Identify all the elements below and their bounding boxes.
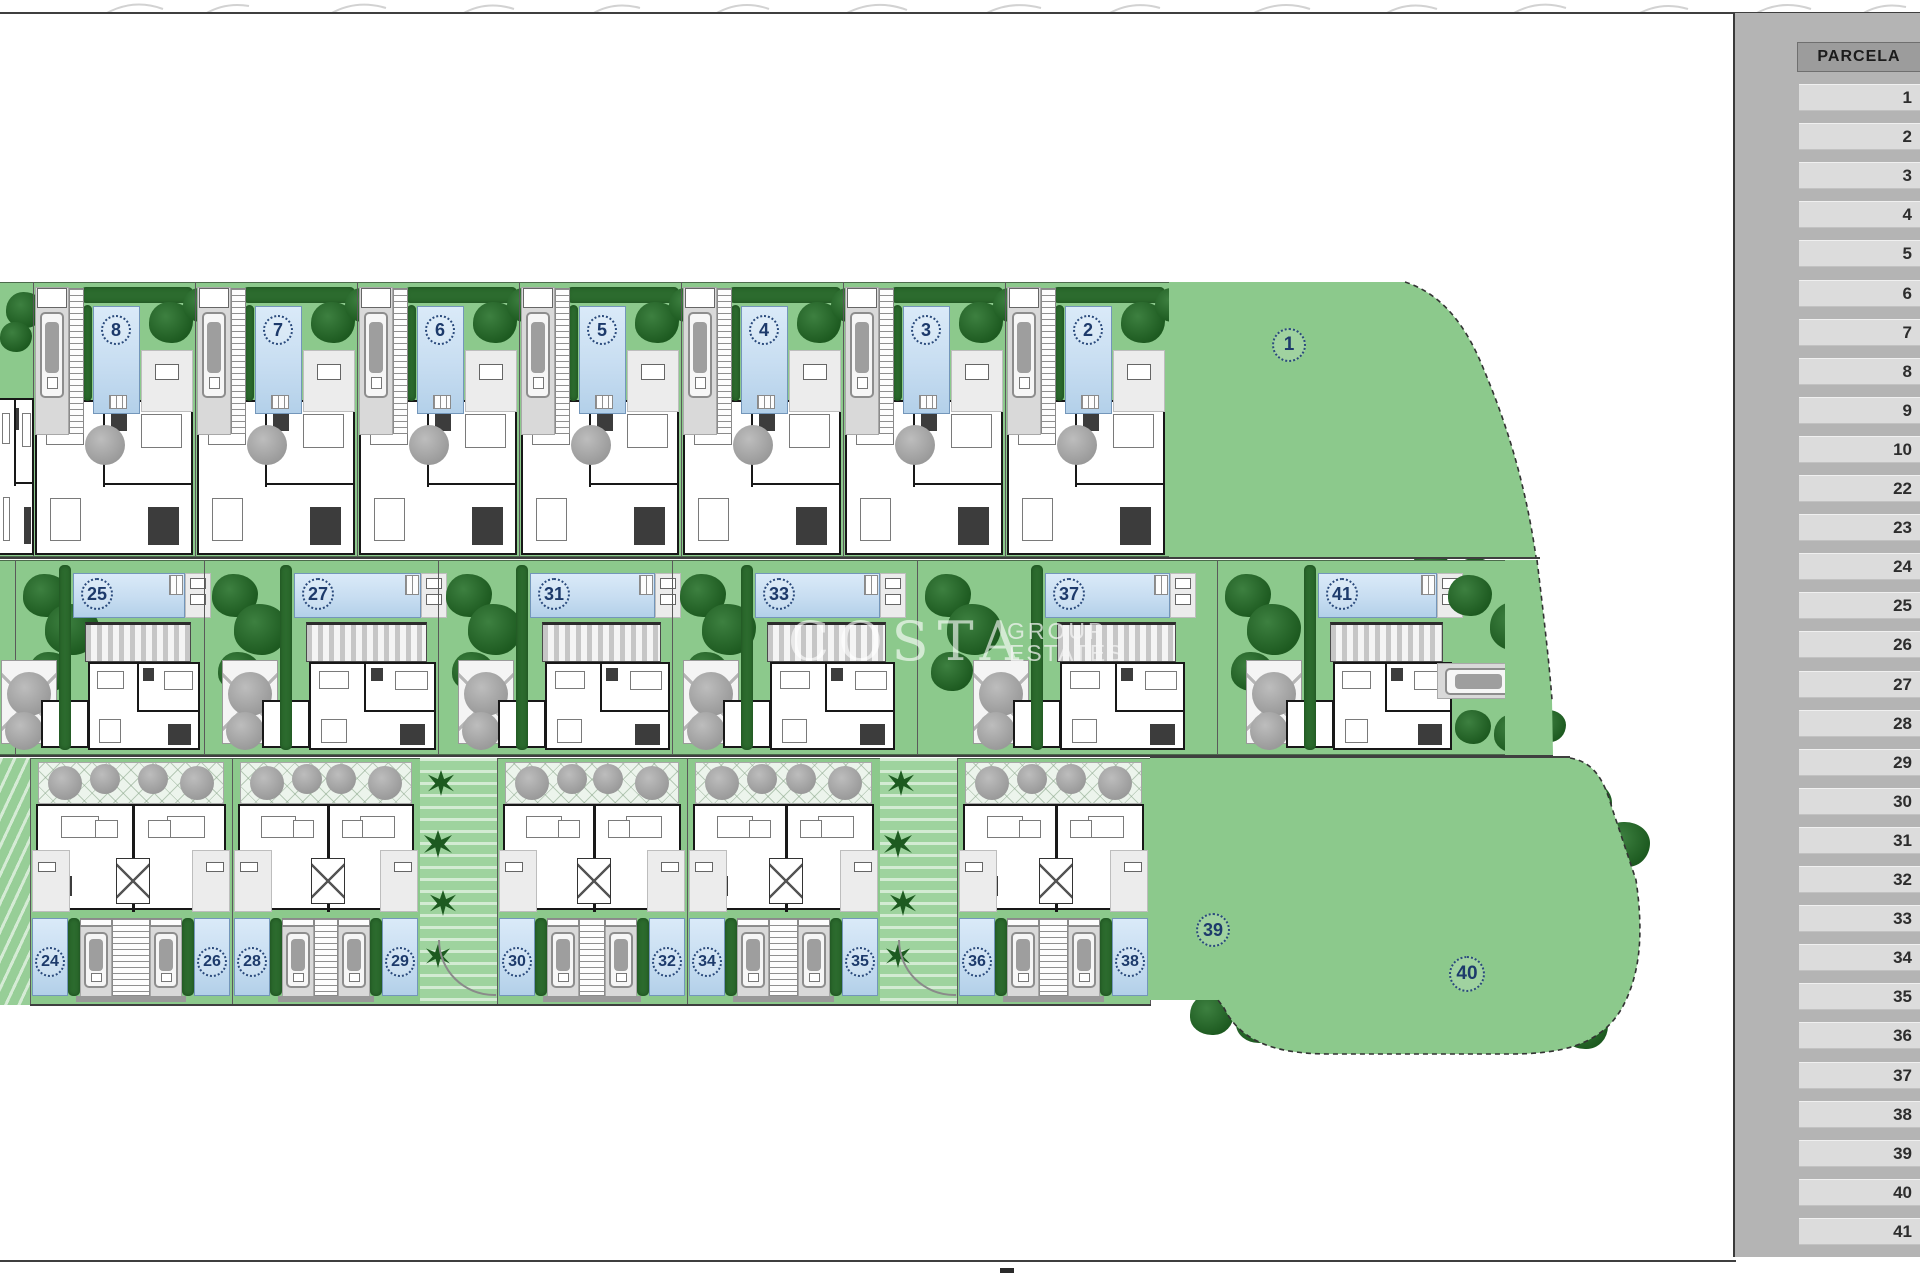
drive-steps — [80, 918, 112, 927]
house-plan — [88, 662, 200, 750]
deck-box — [1290, 924, 1304, 933]
terrace — [647, 850, 685, 912]
lounge — [661, 862, 679, 872]
hedge — [995, 918, 1007, 996]
tree — [1398, 438, 1444, 481]
room-detail — [860, 498, 892, 541]
parcela-row-39[interactable]: 39 — [1799, 1140, 1920, 1167]
deck-box — [426, 594, 442, 605]
stairs — [231, 288, 246, 434]
drive-steps — [737, 918, 769, 927]
room-detail — [360, 816, 395, 838]
tree — [1247, 604, 1301, 655]
pool-steps — [757, 395, 775, 409]
room-detail — [1019, 820, 1041, 838]
drive-steps — [1068, 918, 1100, 927]
house-plan — [1418, 820, 1558, 906]
room-detail — [635, 724, 660, 745]
gray-tree — [687, 712, 725, 750]
parcela-row-40[interactable]: 40 — [1799, 1179, 1920, 1206]
house-plan — [545, 662, 670, 750]
parcela-row-35[interactable]: 35 — [1799, 983, 1920, 1010]
parcel-circle-8[interactable]: 8 — [101, 315, 131, 345]
room-detail — [261, 816, 296, 838]
hedge — [893, 305, 902, 401]
hedge — [405, 287, 517, 303]
parcela-row-30[interactable]: 30 — [1799, 788, 1920, 815]
parcel-circle-2[interactable]: 2 — [1073, 315, 1103, 345]
road-hatch — [1622, 872, 1632, 902]
room-detail — [310, 507, 342, 544]
pergola — [1447, 906, 1557, 942]
tree — [468, 604, 522, 655]
room-detail — [1486, 826, 1500, 838]
room-detail — [265, 483, 353, 485]
parcel-circle-34[interactable]: 34 — [692, 947, 722, 977]
room-detail — [1345, 719, 1369, 744]
frame-bottom-tick — [1000, 1268, 1014, 1273]
car — [526, 312, 550, 398]
car — [688, 312, 712, 398]
room-detail — [951, 414, 992, 448]
room-detail — [913, 483, 1001, 485]
outdoor-table — [479, 364, 503, 380]
room-detail — [634, 507, 666, 544]
car — [1384, 401, 1456, 427]
car — [1012, 312, 1036, 398]
parcel-circle-6[interactable]: 6 — [425, 315, 455, 345]
room-detail — [1512, 829, 1548, 848]
car — [1562, 874, 1626, 900]
gray-tree — [747, 764, 777, 794]
parcel-circle-40[interactable]: 40 — [1449, 956, 1485, 992]
room-detail — [717, 816, 753, 838]
gray-tree — [593, 764, 623, 794]
room-detail — [311, 858, 345, 904]
room-detail — [400, 724, 425, 745]
gray-tree — [1250, 712, 1288, 750]
drive-steps — [605, 918, 637, 927]
car — [286, 932, 310, 988]
stairs — [1408, 378, 1434, 394]
tree — [1560, 780, 1612, 829]
terrace — [234, 850, 272, 912]
pergola — [85, 622, 191, 662]
lounge — [394, 862, 412, 872]
room-detail — [24, 507, 31, 545]
house-plan — [770, 662, 895, 750]
hedge — [1304, 565, 1316, 750]
car — [154, 932, 178, 988]
room-detail — [1088, 816, 1124, 838]
parcela-row-10[interactable]: 10 — [1799, 436, 1920, 463]
pool-steps — [864, 575, 878, 595]
parcela-row-26[interactable]: 26 — [1799, 631, 1920, 658]
site-plan-screen: 8765432125273133374124262829303234353638… — [0, 0, 1920, 1280]
hedge — [725, 918, 737, 996]
road-shadow — [733, 996, 834, 1002]
drive-steps — [282, 918, 314, 927]
parcel-circle-38[interactable]: 38 — [1115, 947, 1145, 977]
room-detail — [789, 414, 830, 448]
room-detail — [1391, 668, 1403, 680]
gray-tree — [48, 766, 82, 800]
parcela-row-23[interactable]: 23 — [1799, 514, 1920, 541]
pergola — [1330, 622, 1443, 662]
watermark-line3: ESTATES — [1009, 640, 1124, 667]
parcel-circle-3[interactable]: 3 — [911, 315, 941, 345]
stairs — [879, 288, 894, 434]
gray-tree — [515, 766, 549, 800]
room-detail — [630, 671, 663, 690]
room-detail — [61, 816, 99, 838]
room-detail — [2, 413, 10, 444]
parcel-circle-37[interactable]: 37 — [1053, 578, 1085, 610]
room-detail — [855, 671, 888, 690]
parcel-circle-32[interactable]: 32 — [652, 947, 682, 977]
hedge — [729, 287, 841, 303]
car — [1325, 938, 1349, 994]
room-detail — [1070, 820, 1092, 838]
parcel-circle-29[interactable]: 29 — [385, 947, 415, 977]
tree — [1400, 502, 1444, 543]
gray-tree — [250, 766, 284, 800]
pool — [1177, 908, 1283, 953]
watermark-brand: COSTA — [788, 610, 1028, 673]
room-detail — [627, 414, 668, 448]
hedge — [81, 287, 193, 303]
pergola — [306, 622, 427, 662]
tree — [1455, 710, 1491, 744]
room-detail — [395, 671, 428, 690]
room-detail — [558, 820, 579, 838]
parcela-row-36[interactable]: 36 — [1799, 1022, 1920, 1049]
hedge — [569, 305, 578, 401]
tree — [1490, 602, 1542, 651]
room-detail — [164, 671, 193, 690]
room-detail — [303, 414, 344, 448]
garage — [361, 288, 391, 308]
room-detail — [780, 671, 810, 689]
parcel-circle-5[interactable]: 5 — [587, 315, 617, 345]
tree — [1440, 466, 1490, 513]
stairs — [393, 288, 408, 434]
lounge — [854, 862, 872, 872]
room-detail — [698, 498, 730, 541]
garage — [523, 288, 553, 308]
lounge — [695, 862, 713, 872]
room-detail — [1121, 668, 1134, 680]
room-detail — [1385, 664, 1387, 712]
parcel-circle-26[interactable]: 26 — [197, 947, 227, 977]
hedge — [245, 305, 254, 401]
pergola — [1233, 866, 1341, 902]
road-shadow — [278, 996, 374, 1002]
terrace — [1110, 850, 1148, 912]
lounge — [965, 862, 983, 872]
room-detail — [1431, 875, 1459, 899]
hedge — [516, 565, 528, 750]
parcela-row-24[interactable]: 24 — [1799, 553, 1920, 580]
parcela-row-4[interactable]: 4 — [1799, 201, 1920, 228]
stairs — [555, 288, 570, 434]
row-line — [30, 1004, 1151, 1006]
gray-tree — [557, 764, 587, 794]
deck-box — [1175, 578, 1191, 589]
car — [850, 312, 874, 398]
plot-line — [1150, 758, 1151, 1005]
hedge — [270, 918, 282, 996]
deck-box — [885, 594, 901, 605]
room-detail — [137, 664, 139, 712]
parcela-row-2[interactable]: 2 — [1799, 123, 1920, 150]
plot-line — [204, 560, 205, 755]
parcela-header: PARCELA — [1797, 42, 1920, 72]
parcela-row-3[interactable]: 3 — [1799, 162, 1920, 189]
road-shadow — [76, 996, 186, 1002]
gray-tree — [977, 712, 1015, 750]
room-detail — [600, 710, 670, 712]
center-stairs — [579, 918, 605, 996]
deck-box — [660, 594, 676, 605]
room-detail — [1273, 483, 1295, 526]
tree — [1494, 714, 1536, 753]
room-detail — [1479, 822, 1481, 869]
tree — [1562, 1006, 1608, 1049]
parcela-row-5[interactable]: 5 — [1799, 240, 1920, 267]
room-detail — [465, 414, 506, 448]
plot-line — [30, 758, 31, 1005]
frame-bottom-line — [0, 1260, 1736, 1262]
road-shadow — [1003, 996, 1104, 1002]
tree — [1518, 998, 1562, 1039]
gray-tree — [326, 764, 356, 794]
room-detail — [796, 507, 828, 544]
hedge — [182, 918, 194, 996]
room-detail — [143, 668, 154, 680]
tree — [1420, 758, 1456, 792]
center-stairs — [1039, 918, 1068, 996]
parcela-row-25[interactable]: 25 — [1799, 592, 1920, 619]
terrace — [1113, 350, 1165, 412]
room-detail — [148, 820, 171, 838]
hedge — [59, 565, 71, 750]
parcel-circle-39[interactable]: 39 — [1196, 913, 1230, 947]
plot-line — [519, 282, 520, 557]
room-detail — [14, 482, 33, 484]
room-detail — [137, 710, 200, 712]
car — [609, 932, 633, 988]
parcela-row-8[interactable]: 8 — [1799, 358, 1920, 385]
parcela-row-33[interactable]: 33 — [1799, 905, 1920, 932]
plot-line — [232, 758, 233, 1005]
garage — [1009, 288, 1039, 308]
room-detail — [1340, 492, 1362, 528]
parcela-row-28[interactable]: 28 — [1799, 710, 1920, 737]
pool-house — [1377, 328, 1393, 345]
house-plan — [1333, 662, 1452, 750]
pool-house — [1566, 970, 1592, 984]
hedge — [567, 287, 679, 303]
terrace — [32, 850, 70, 912]
pool-house — [1566, 952, 1592, 968]
terrace — [840, 850, 878, 912]
parcel-circle-30[interactable]: 30 — [502, 947, 532, 977]
gray-tree — [1232, 438, 1272, 478]
car — [551, 932, 575, 988]
garage — [685, 288, 715, 308]
parcel-circle-41[interactable]: 41 — [1326, 578, 1358, 610]
room-detail — [342, 820, 363, 838]
tree — [1448, 575, 1492, 616]
car — [40, 312, 64, 398]
garage — [847, 288, 877, 308]
parcel-circle-7[interactable]: 7 — [263, 315, 293, 345]
room-detail — [167, 816, 205, 838]
room-detail — [116, 858, 150, 904]
parcela-row-6[interactable]: 6 — [1799, 280, 1920, 307]
house-plan-partial — [0, 398, 34, 555]
parcela-row-22[interactable]: 22 — [1799, 475, 1920, 502]
pool-steps — [595, 395, 613, 409]
tree — [1532, 710, 1566, 742]
house-plan — [1060, 662, 1185, 750]
room-detail — [3, 497, 10, 541]
road-hatch — [1526, 665, 1548, 697]
pool-steps — [1421, 575, 1435, 595]
gray-tree — [1017, 764, 1047, 794]
room-detail — [1215, 832, 1243, 857]
terrace — [141, 350, 193, 412]
room-detail — [577, 858, 611, 904]
room-detail — [1428, 829, 1462, 846]
room-detail — [1022, 498, 1054, 541]
row-line — [1150, 756, 1570, 758]
outdoor-table — [317, 364, 341, 380]
plot-line — [497, 758, 498, 1005]
parcela-row-29[interactable]: 29 — [1799, 749, 1920, 776]
room-detail — [168, 724, 190, 745]
car — [342, 932, 366, 988]
parcela-row-32[interactable]: 32 — [1799, 866, 1920, 893]
parcela-row-38[interactable]: 38 — [1799, 1101, 1920, 1128]
room-detail — [16, 408, 19, 430]
car — [1011, 932, 1035, 988]
drive-steps — [150, 918, 182, 927]
parcela-row-34[interactable]: 34 — [1799, 944, 1920, 971]
parcela-row-37[interactable]: 37 — [1799, 1062, 1920, 1089]
gray-tree — [368, 766, 402, 800]
parcel-circle-33[interactable]: 33 — [763, 578, 795, 610]
parcel-circle-31[interactable]: 31 — [538, 578, 570, 610]
deck-box — [885, 578, 901, 589]
car — [1445, 668, 1527, 695]
gray-tree — [90, 764, 120, 794]
garage — [199, 288, 229, 308]
room-detail — [22, 413, 31, 448]
car — [741, 932, 765, 988]
drive-steps — [338, 918, 370, 927]
parcel-circle-1[interactable]: 1 — [1272, 328, 1306, 362]
pergola — [542, 622, 661, 662]
room-detail — [472, 507, 504, 544]
room-detail — [427, 483, 515, 485]
terrace — [689, 850, 727, 912]
plot-line — [195, 282, 196, 557]
room-detail — [1039, 858, 1073, 904]
gray-tree — [5, 712, 43, 750]
hedge — [891, 287, 1003, 303]
drive-steps — [1007, 918, 1039, 927]
deck-box — [660, 578, 676, 589]
pool-steps — [169, 575, 183, 595]
row-line — [0, 557, 1540, 559]
plot-line — [357, 282, 358, 557]
parcela-row-31[interactable]: 31 — [1799, 827, 1920, 854]
parcela-row-1[interactable]: 1 — [1799, 84, 1920, 111]
parcel-circle-27[interactable]: 27 — [302, 578, 334, 610]
room-detail — [608, 820, 629, 838]
tree — [1358, 283, 1384, 307]
garage — [37, 288, 67, 308]
gray-tree — [1057, 425, 1097, 465]
terrace — [499, 850, 537, 912]
parcela-row-9[interactable]: 9 — [1799, 397, 1920, 424]
drive-steps — [798, 918, 830, 927]
gray-tree — [786, 764, 816, 794]
center-stairs — [769, 918, 798, 996]
gray-tree — [828, 766, 862, 800]
parcel-circle-36[interactable]: 36 — [962, 947, 992, 977]
room-detail — [374, 498, 406, 541]
room-detail — [1115, 664, 1117, 712]
room-detail — [626, 816, 662, 838]
lounge — [38, 862, 56, 872]
parcela-row-41[interactable]: 41 — [1799, 1218, 1920, 1245]
parcela-panel: PARCELA 12345678910222324252627282930313… — [1733, 13, 1920, 1257]
gray-tree — [247, 425, 287, 465]
parcel-circle-35[interactable]: 35 — [845, 947, 875, 977]
parcela-row-27[interactable]: 27 — [1799, 671, 1920, 698]
room-detail — [1212, 784, 1246, 802]
room-detail — [1115, 710, 1185, 712]
terrace — [951, 350, 1003, 412]
room-detail — [751, 483, 839, 485]
car — [84, 932, 108, 988]
parcel-circle-25[interactable]: 25 — [81, 578, 113, 610]
pool-house — [1395, 338, 1409, 352]
plot-line — [843, 282, 844, 557]
pool-steps — [109, 395, 127, 409]
lounge — [206, 862, 224, 872]
tree — [0, 322, 32, 352]
tree — [1236, 1000, 1282, 1043]
terrace — [789, 350, 841, 412]
room-detail — [99, 719, 121, 744]
parcel-circle-4[interactable]: 4 — [749, 315, 779, 345]
hedge — [1100, 918, 1112, 996]
parcela-row-7[interactable]: 7 — [1799, 319, 1920, 346]
plot-line — [687, 758, 688, 1005]
lounge — [240, 862, 258, 872]
room-detail — [1072, 719, 1097, 744]
parcel-circle-28[interactable]: 28 — [237, 947, 267, 977]
room-detail — [1270, 781, 1284, 793]
outdoor-table — [965, 364, 989, 380]
plot-line — [681, 282, 682, 557]
terrace — [380, 850, 418, 912]
parcel-circle-24[interactable]: 24 — [35, 947, 65, 977]
